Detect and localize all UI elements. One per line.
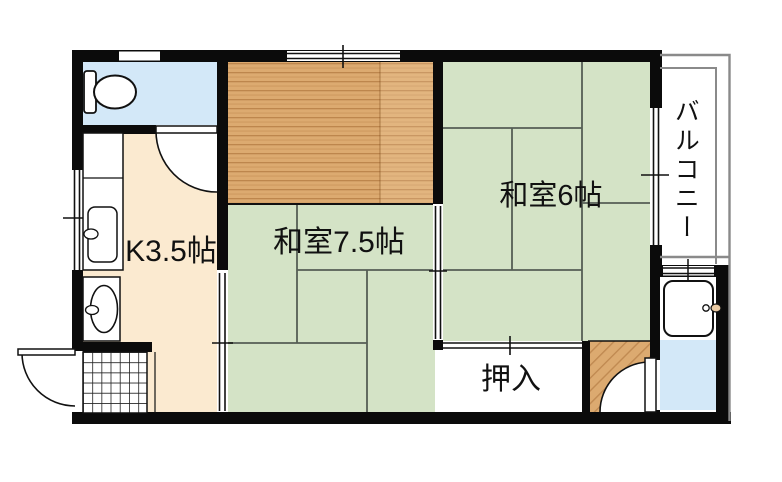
wall-bathroom-right bbox=[716, 265, 730, 413]
japanese-room-7-5-floor bbox=[228, 204, 435, 413]
kitchen-sink-icon bbox=[83, 133, 123, 270]
toilet-window bbox=[119, 52, 160, 61]
bathroom-floor bbox=[660, 340, 717, 410]
bathtub-icon bbox=[664, 281, 721, 336]
entrance-tile bbox=[83, 352, 155, 413]
wall-wood-area-right bbox=[433, 62, 443, 204]
floor-plan: K3.5帖 和室7.5帖 和室6帖 押入 バルコニー bbox=[0, 0, 782, 482]
wall-room6-right-upper bbox=[650, 50, 662, 108]
wall-bottom bbox=[72, 412, 731, 424]
kitchen-side-window bbox=[63, 170, 84, 270]
entrance-door bbox=[18, 349, 83, 412]
wall-kitchen-rooms bbox=[217, 62, 228, 270]
floor-fills bbox=[83, 60, 717, 413]
wall-entry-divider bbox=[72, 342, 152, 352]
wall-room6-right-lower bbox=[650, 245, 662, 265]
closet-floor bbox=[443, 341, 582, 413]
wall-stub bbox=[433, 340, 443, 350]
wood-floor-panel-seam-light bbox=[380, 62, 433, 204]
wall-closet-right bbox=[582, 341, 590, 412]
wall-bathroom-left bbox=[650, 265, 660, 360]
wall-left-mid bbox=[72, 270, 83, 351]
japanese-room-6-floor bbox=[443, 60, 652, 341]
wall-left-upper bbox=[72, 62, 83, 170]
floor-plan-drawing bbox=[0, 0, 782, 482]
washbasin-icon bbox=[83, 277, 120, 341]
